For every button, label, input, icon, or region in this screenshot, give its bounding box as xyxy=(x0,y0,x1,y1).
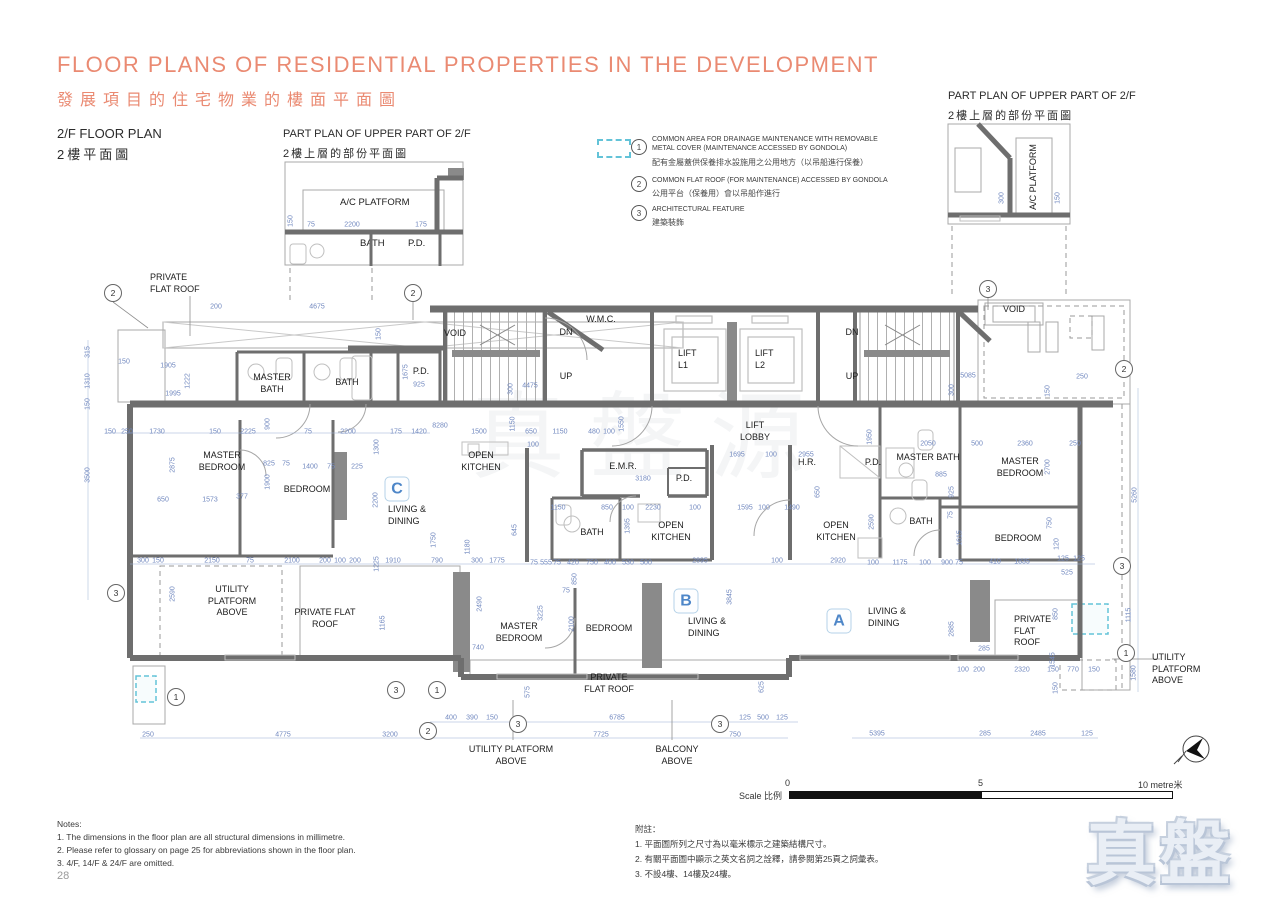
dimension-label: 390 xyxy=(466,715,478,722)
room-label: BEDROOM xyxy=(995,533,1042,545)
dimension-label: 100 xyxy=(758,505,770,512)
dimension-label: 150 xyxy=(376,328,383,340)
dimension-label: 1310 xyxy=(85,373,92,389)
dimension-label: 2360 xyxy=(1017,441,1033,448)
dimension-label: 1545 xyxy=(1050,652,1057,668)
room-label: LIFTLOBBY xyxy=(740,420,770,443)
reference-circle-marker: 2 xyxy=(104,284,122,302)
dimension-label: 150 xyxy=(1053,682,1060,694)
room-label: MASTERBEDROOM xyxy=(997,456,1044,479)
dimension-label: 2200 xyxy=(340,429,356,436)
dimension-label: 100 xyxy=(867,560,879,567)
dimension-label: 500 xyxy=(971,441,983,448)
reference-circle-marker: 3 xyxy=(107,584,125,602)
dimension-label: 1615 xyxy=(957,530,964,546)
unit-badge-A: A xyxy=(827,609,852,634)
dimension-label: 1995 xyxy=(165,391,181,398)
note-line-zh: 2. 有關平面圖中顯示之英文名詞之詮釋，請參閱第25頁之詞彙表。 xyxy=(635,852,883,867)
dimension-label: 2590 xyxy=(869,514,876,530)
dimension-label: 1180 xyxy=(465,539,472,554)
dimension-label: 300 xyxy=(471,558,483,565)
dimension-label: 250 xyxy=(1069,441,1081,448)
dimension-label: 3200 xyxy=(382,732,398,739)
dimension-label: 5395 xyxy=(869,731,885,738)
dimension-label: 825 xyxy=(263,461,275,468)
dimension-label: 2895 xyxy=(692,558,708,565)
dimension-label: 75 xyxy=(246,558,254,565)
dimension-label: 925 xyxy=(949,486,956,498)
dimension-label: 200 xyxy=(349,558,361,565)
dimension-label: 1300 xyxy=(374,439,381,455)
dimension-label: 400 xyxy=(445,715,457,722)
dimension-label: 1400 xyxy=(302,464,318,471)
room-label: MASTERBATH xyxy=(253,372,291,395)
room-label: LIVING &DINING xyxy=(868,606,906,629)
reference-circle-marker: 2 xyxy=(1115,360,1133,378)
dimension-label: 1905 xyxy=(160,363,176,370)
dimension-label: 925 xyxy=(413,382,425,389)
room-label: BATH xyxy=(335,377,358,389)
scale-tick-0: 0 xyxy=(785,778,790,788)
unit-badge-C: C xyxy=(385,477,410,502)
dimension-label: 1175 xyxy=(892,560,907,567)
room-label: LIFTL1 xyxy=(678,348,697,371)
dimension-label: 315 xyxy=(85,346,92,358)
dimension-label: 100 xyxy=(527,442,539,449)
dimension-label: 2700 xyxy=(1045,459,1052,475)
room-label: PRIVATE FLATROOF xyxy=(294,607,355,630)
scale-tick-10: 10 metre米 xyxy=(1138,778,1183,791)
dimension-label: 2100 xyxy=(569,616,576,632)
dimension-label: 500 xyxy=(757,715,769,722)
dimension-label: 1225 xyxy=(374,556,381,572)
plan-labels-overlay: PRIVATEFLAT ROOFVOIDMASTERBATHBATHP.D.DN… xyxy=(0,0,1280,910)
dimension-label: 1675 xyxy=(403,364,410,380)
dimension-label: 2920 xyxy=(830,558,846,565)
room-label: OPENKITCHEN xyxy=(651,520,691,543)
dimension-label: 410 xyxy=(989,559,1001,566)
watermark: 真盤源 xyxy=(1086,798,1280,910)
dimension-label: 75 xyxy=(955,560,963,567)
dimension-label: 125 xyxy=(1073,556,1085,563)
page-number: 28 xyxy=(57,870,69,882)
room-label: BATH xyxy=(580,527,603,539)
dimension-label: 1115 xyxy=(1126,608,1133,623)
dimension-label: 1730 xyxy=(149,429,165,436)
dimension-label: 625 xyxy=(759,681,766,693)
dimension-label: 2050 xyxy=(920,441,936,448)
note-line: 3. 4/F, 14/F & 24/F are omitted. xyxy=(57,857,356,870)
dimension-label: 125 xyxy=(1057,556,1069,563)
dimension-label: 150 xyxy=(288,215,295,227)
dimension-label: 100 xyxy=(622,505,634,512)
dimension-label: 100 xyxy=(689,505,701,512)
dimension-label: 75 xyxy=(530,560,538,567)
dimension-label: 500 xyxy=(640,560,652,567)
dimension-label: 125 xyxy=(776,715,788,722)
dimension-label: 1595 xyxy=(737,505,753,512)
dimension-label: 175 xyxy=(415,222,427,229)
dimension-label: 1550 xyxy=(619,416,626,432)
reference-circle-marker: 2 xyxy=(419,722,437,740)
room-label: BEDROOM xyxy=(284,484,331,496)
scale-bar-filled-segment xyxy=(789,791,981,799)
dimension-label: 75 xyxy=(304,429,312,436)
note-line-zh: 3. 不設4樓、14樓及24樓。 xyxy=(635,867,883,882)
dimension-label: 6785 xyxy=(609,715,625,722)
dimension-label: 2485 xyxy=(1030,731,1046,738)
dimension-label: 5085 xyxy=(960,373,976,380)
dimension-label: 900 xyxy=(265,418,272,430)
note-line: 2. Please refer to glossary on page 25 f… xyxy=(57,844,356,857)
dimension-label: 1900 xyxy=(265,474,272,490)
room-label: E.M.R. xyxy=(609,461,637,473)
room-label: P.D. xyxy=(676,473,692,485)
dimension-label: 2200 xyxy=(344,222,360,229)
dimension-label: 150 xyxy=(1045,385,1052,397)
dimension-label: 2875 xyxy=(170,457,177,473)
room-label: MASTERBEDROOM xyxy=(199,450,246,473)
room-label: VOID xyxy=(1003,304,1025,316)
dimension-label: 250 xyxy=(121,429,133,436)
dimension-label: 150 xyxy=(118,359,130,366)
room-label: PRIVATEFLATROOF xyxy=(1014,614,1051,649)
scale-bar-label: Scale 比例 xyxy=(718,789,782,802)
dimension-label: 8280 xyxy=(432,423,448,430)
dimension-label: 575 xyxy=(525,686,532,698)
dimension-label: 2100 xyxy=(284,558,300,565)
dimension-label: 150 xyxy=(1047,667,1059,674)
room-label: LIFTL2 xyxy=(755,348,774,371)
dimension-label: 75 xyxy=(282,461,290,468)
room-label: UTILITYPLATFORMABOVE xyxy=(208,584,256,619)
reference-circle-marker: 1 xyxy=(1117,644,1135,662)
dimension-label: 225 xyxy=(351,464,363,471)
dimension-label: 850 xyxy=(1053,608,1060,620)
dimension-label: 480 xyxy=(588,429,600,436)
room-label: MASTER BATH xyxy=(896,452,959,464)
notes-english: Notes: 1. The dimensions in the floor pl… xyxy=(57,818,356,870)
dimension-label: 150 xyxy=(1055,192,1062,204)
dimension-label: 420 xyxy=(567,560,579,567)
reference-circle-marker: 1 xyxy=(428,681,446,699)
room-label: DN xyxy=(846,327,859,339)
dimension-label: 150 xyxy=(486,715,498,722)
dimension-label: 1150 xyxy=(550,505,565,512)
dimension-label: 3845 xyxy=(727,589,734,605)
dimension-label: 3180 xyxy=(635,476,651,483)
dimension-label: 1910 xyxy=(385,558,401,565)
dimension-label: 7725 xyxy=(593,732,609,739)
dimension-label: 1775 xyxy=(489,558,505,565)
dimension-label: 1490 xyxy=(784,505,800,512)
room-label: VOID xyxy=(444,328,466,340)
dimension-label: 2885 xyxy=(949,621,956,637)
dimension-label: 400 xyxy=(604,560,616,567)
dimension-label: 100 xyxy=(957,667,969,674)
reference-circle-marker: 3 xyxy=(711,715,729,733)
dimension-label: 1835 xyxy=(1014,559,1030,566)
dimension-label: 2955 xyxy=(798,452,814,459)
reference-circle-marker: 3 xyxy=(387,681,405,699)
dimension-label: 120 xyxy=(1054,538,1061,550)
dimension-label: 300 xyxy=(999,192,1006,204)
room-label: P.D. xyxy=(413,366,429,378)
dimension-label: 100 xyxy=(603,429,615,436)
dimension-label: 2230 xyxy=(645,505,661,512)
reference-circle-marker: 3 xyxy=(509,715,527,733)
notes-chinese: 附註： 1. 平面圖所列之尺寸為以毫米標示之建築結構尺寸。 2. 有關平面圖中顯… xyxy=(635,822,883,882)
dimension-label: 1500 xyxy=(471,429,487,436)
dimension-label: 150 xyxy=(152,558,164,565)
dimension-label: 4675 xyxy=(309,304,325,311)
dimension-label: 2200 xyxy=(373,492,380,508)
dimension-label: 250 xyxy=(1076,374,1088,381)
dimension-label: 1150 xyxy=(552,429,567,436)
dimension-label: 285 xyxy=(978,646,990,653)
dimension-label: 1165 xyxy=(380,615,387,630)
dimension-label: 2320 xyxy=(1014,667,1030,674)
dimension-label: 750 xyxy=(1047,517,1054,529)
unit-badge-B: B xyxy=(674,589,699,614)
dimension-label: 750 xyxy=(729,732,741,739)
dimension-label: 2225 xyxy=(240,429,256,436)
dimension-label: 885 xyxy=(935,472,947,479)
dimension-label: 525 xyxy=(1061,570,1073,577)
dimension-label: 300 xyxy=(137,558,149,565)
reference-circle-marker: 2 xyxy=(404,284,422,302)
reference-circle-marker: 3 xyxy=(979,280,997,298)
dimension-label: 1750 xyxy=(431,532,438,548)
dimension-label: 1222 xyxy=(185,373,192,389)
dimension-label: 3500 xyxy=(85,467,92,483)
room-label: LIVING &DINING xyxy=(388,504,426,527)
scale-tick-5: 5 xyxy=(978,778,983,788)
dimension-label: 200 xyxy=(210,304,222,311)
dimension-label: 4775 xyxy=(275,732,291,739)
room-label: DN xyxy=(560,327,573,339)
dimension-label: 285 xyxy=(979,731,991,738)
room-label: UP xyxy=(846,371,859,383)
room-label: UTILITYPLATFORMABOVE xyxy=(1152,652,1200,687)
dimension-label: 1150 xyxy=(510,416,517,431)
dimension-label: 900 xyxy=(941,560,953,567)
dimension-label: 200 xyxy=(973,667,985,674)
dimension-label: 75 xyxy=(307,222,315,229)
dimension-label: 75 xyxy=(553,560,561,567)
dimension-label: 2150 xyxy=(204,558,220,565)
brochure-page: FLOOR PLANS OF RESIDENTIAL PROPERTIES IN… xyxy=(0,0,1280,910)
room-label: P.D. xyxy=(865,457,881,469)
dimension-label: 645 xyxy=(512,524,519,536)
room-label: BATH xyxy=(909,516,932,528)
note-line: 1. The dimensions in the floor plan are … xyxy=(57,831,356,844)
room-label: UTILITY PLATFORMABOVE xyxy=(469,744,553,767)
dimension-label: 530 xyxy=(622,560,634,567)
room-label: W.M.C. xyxy=(586,314,616,326)
dimension-label: 75 xyxy=(948,511,955,519)
dimension-label: 650 xyxy=(815,486,822,498)
dimension-label: 1573 xyxy=(202,497,218,504)
dimension-label: 650 xyxy=(157,497,169,504)
dimension-label: 175 xyxy=(390,429,402,436)
dimension-label: 1695 xyxy=(729,452,745,459)
dimension-label: 2490 xyxy=(477,596,484,612)
dimension-label: 300 xyxy=(508,383,515,395)
room-label: MASTERBEDROOM xyxy=(496,621,543,644)
dimension-label: 5260 xyxy=(1132,487,1139,503)
dimension-label: 125 xyxy=(1081,731,1093,738)
room-label: H.R. xyxy=(798,457,816,469)
dimension-label: 250 xyxy=(142,732,154,739)
dimension-label: 740 xyxy=(472,645,484,652)
note-line-zh: 1. 平面圖所列之尺寸為以毫米標示之建築結構尺寸。 xyxy=(635,837,883,852)
room-label: BEDROOM xyxy=(586,623,633,635)
dimension-label: 2590 xyxy=(170,586,177,602)
room-label: BALCONYABOVE xyxy=(655,744,698,767)
dimension-label: 100 xyxy=(919,560,931,567)
dimension-label: 150 xyxy=(1088,667,1100,674)
room-label: OPENKITCHEN xyxy=(461,450,501,473)
dimension-label: 75 xyxy=(327,464,335,471)
notes-title: Notes: xyxy=(57,818,356,831)
dimension-label: 1420 xyxy=(411,429,427,436)
dimension-label: 300 xyxy=(949,384,956,396)
dimension-label: 1950 xyxy=(867,429,874,445)
dimension-label: 1395 xyxy=(625,518,632,534)
dimension-label: 850 xyxy=(572,573,579,585)
reference-circle-marker: 3 xyxy=(1113,557,1131,575)
dimension-label: 790 xyxy=(431,558,443,565)
dimension-label: 4475 xyxy=(522,383,538,390)
dimension-label: 770 xyxy=(1067,667,1079,674)
dimension-label: 3225 xyxy=(538,605,545,621)
dimension-label: 75 xyxy=(562,588,570,595)
room-label: OPENKITCHEN xyxy=(816,520,856,543)
dimension-label: 377 xyxy=(236,494,248,501)
reference-circle-marker: 1 xyxy=(167,688,185,706)
dimension-label: 200 xyxy=(319,558,331,565)
dimension-label: 125 xyxy=(739,715,751,722)
dimension-label: 555 xyxy=(540,560,552,567)
room-label: LIVING &DINING xyxy=(688,616,726,639)
dimension-label: 150 xyxy=(209,429,221,436)
dimension-label: 100 xyxy=(334,558,346,565)
room-label: UP xyxy=(560,371,573,383)
notes-title-zh: 附註： xyxy=(635,822,883,837)
dimension-label: 100 xyxy=(765,452,777,459)
dimension-label: 650 xyxy=(525,429,537,436)
dimension-label: 750 xyxy=(586,560,598,567)
room-label: PRIVATEFLAT ROOF xyxy=(150,272,200,295)
dimension-label: 1580 xyxy=(1131,665,1138,681)
dimension-label: 850 xyxy=(601,505,613,512)
room-label: PRIVATEFLAT ROOF xyxy=(584,672,634,695)
dimension-label: 100 xyxy=(771,558,783,565)
dimension-label: 150 xyxy=(104,429,116,436)
dimension-label: 150 xyxy=(85,398,92,410)
